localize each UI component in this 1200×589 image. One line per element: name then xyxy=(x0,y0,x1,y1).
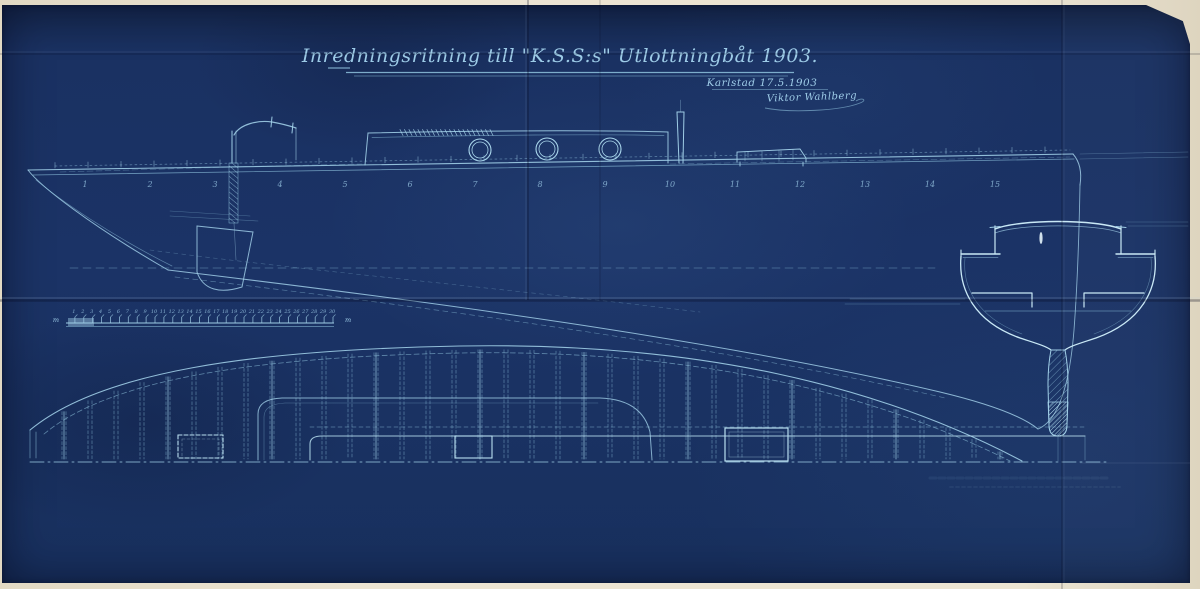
svg-text:22: 22 xyxy=(257,309,264,315)
svg-text:15: 15 xyxy=(990,180,1000,189)
svg-text:1: 1 xyxy=(82,180,87,189)
svg-text:5: 5 xyxy=(342,180,347,189)
scale-unit-right: m xyxy=(345,316,351,324)
svg-text:6: 6 xyxy=(117,309,121,315)
svg-text:7: 7 xyxy=(126,309,130,315)
blueprint-drawing: Inredningsritning till "K.S.S:s" Utlottn… xyxy=(0,0,1200,589)
portholes xyxy=(469,138,621,161)
svg-text:12: 12 xyxy=(795,180,805,189)
svg-text:8: 8 xyxy=(537,180,542,189)
svg-text:5: 5 xyxy=(108,309,111,315)
bow-fitting xyxy=(197,117,296,290)
svg-text:12: 12 xyxy=(169,309,175,315)
blueprint-scan: { "document": { "title": "Inredningsritn… xyxy=(0,0,1200,589)
mast xyxy=(677,100,684,163)
svg-text:20: 20 xyxy=(239,309,247,315)
svg-text:29: 29 xyxy=(319,309,327,315)
svg-text:15: 15 xyxy=(195,309,201,315)
scale-ticks: 1234567891011121314151617181920212223242… xyxy=(72,309,336,323)
svg-text:23: 23 xyxy=(266,309,273,315)
svg-text:10: 10 xyxy=(151,309,158,315)
svg-text:14: 14 xyxy=(925,180,935,189)
svg-text:4: 4 xyxy=(276,180,282,189)
fold-creases xyxy=(0,0,1200,589)
svg-text:30: 30 xyxy=(329,309,336,315)
svg-text:24: 24 xyxy=(274,309,281,315)
drawing-title: Inredningsritning till "K.S.S:s" Utlottn… xyxy=(301,45,818,67)
station-numbers: 123456789101112131415 xyxy=(82,180,1000,189)
svg-text:13: 13 xyxy=(178,309,184,315)
svg-text:16: 16 xyxy=(204,309,211,315)
svg-text:2: 2 xyxy=(146,180,152,189)
svg-text:6: 6 xyxy=(407,180,412,189)
svg-text:7: 7 xyxy=(472,180,478,189)
signature: Viktor Wahlberg xyxy=(767,90,858,104)
place-date: Karlstad 17.5.1903 xyxy=(706,77,818,89)
scale-bar: m m 123456789101112131415161718192021222… xyxy=(53,309,351,327)
svg-text:19: 19 xyxy=(231,309,238,315)
paper-fleck xyxy=(1039,232,1042,244)
svg-text:14: 14 xyxy=(186,309,192,315)
deck-hatches xyxy=(178,428,788,461)
svg-text:21: 21 xyxy=(248,309,255,315)
svg-text:28: 28 xyxy=(310,309,317,315)
svg-text:25: 25 xyxy=(283,309,290,315)
svg-text:27: 27 xyxy=(301,309,309,315)
svg-text:3: 3 xyxy=(90,309,93,315)
svg-text:17: 17 xyxy=(213,309,220,315)
svg-text:13: 13 xyxy=(860,180,870,189)
svg-text:1: 1 xyxy=(72,309,75,315)
svg-text:11: 11 xyxy=(730,180,740,189)
svg-text:11: 11 xyxy=(160,309,166,315)
deck-stanchions xyxy=(55,147,1045,168)
svg-text:18: 18 xyxy=(222,309,228,315)
svg-text:2: 2 xyxy=(80,309,84,315)
svg-text:9: 9 xyxy=(602,180,607,189)
svg-text:10: 10 xyxy=(665,180,675,189)
svg-text:26: 26 xyxy=(292,309,300,315)
svg-text:8: 8 xyxy=(135,309,138,315)
svg-text:4: 4 xyxy=(98,309,102,315)
svg-text:9: 9 xyxy=(144,309,148,315)
svg-text:3: 3 xyxy=(212,180,217,189)
plan-view xyxy=(30,346,1120,487)
scale-unit-left: m xyxy=(53,316,59,324)
